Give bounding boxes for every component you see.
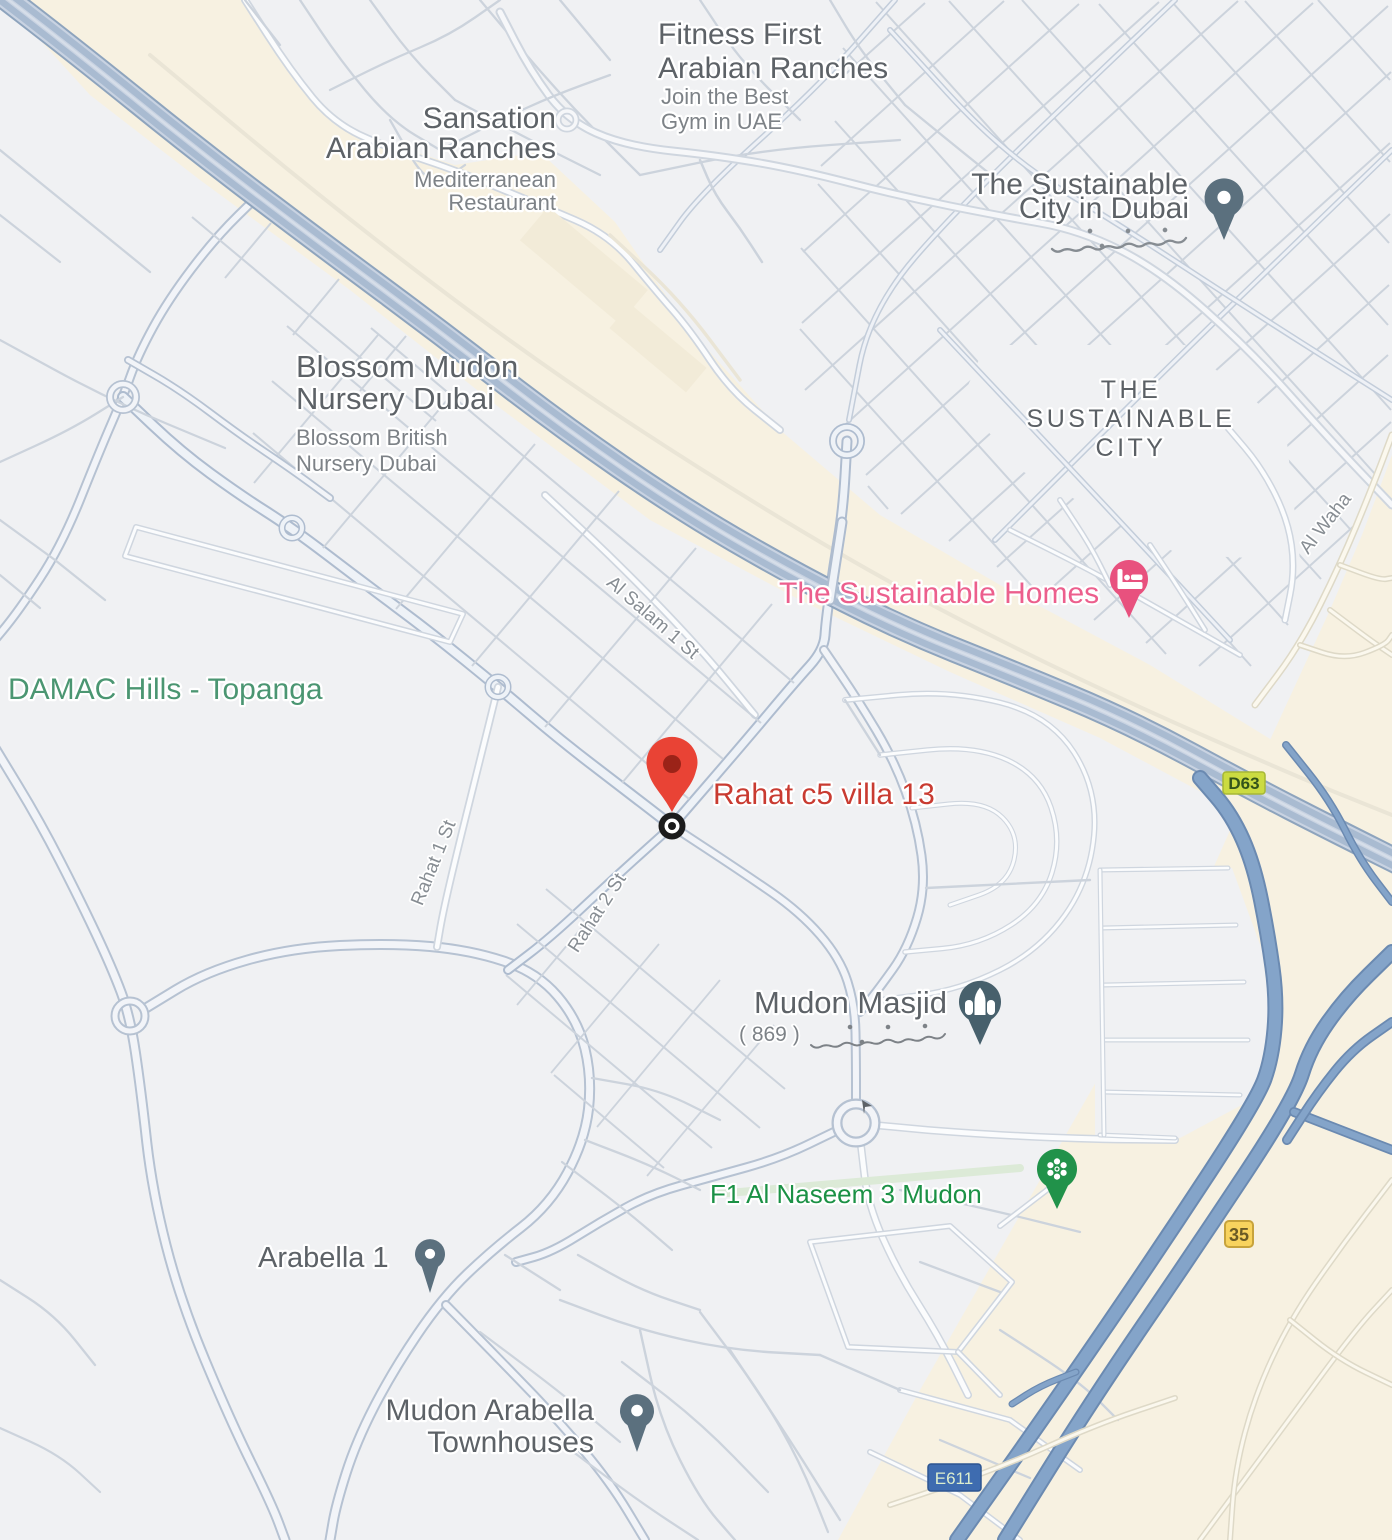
svg-text:Sansation: Sansation <box>423 102 556 135</box>
svg-text:Fitness First: Fitness First <box>658 18 822 51</box>
svg-text:( 869 ): ( 869 ) <box>739 1023 800 1046</box>
svg-text:D63: D63 <box>1228 774 1259 793</box>
svg-text:Mediterranean: Mediterranean <box>414 167 556 192</box>
svg-text:F1 Al Naseem 3 Mudon: F1 Al Naseem 3 Mudon <box>710 1179 982 1209</box>
svg-text:Join the Best: Join the Best <box>661 84 788 109</box>
svg-text:Blossom Mudon: Blossom Mudon <box>296 349 518 384</box>
svg-text:Restaurant: Restaurant <box>448 190 556 215</box>
svg-text:Blossom British: Blossom British <box>296 425 448 450</box>
svg-text:CITY: CITY <box>1096 434 1167 462</box>
svg-text:Nursery Dubai: Nursery Dubai <box>296 451 437 476</box>
svg-text:Arabian Ranches: Arabian Ranches <box>326 132 556 165</box>
svg-text:City in Dubai: City in Dubai <box>1019 192 1189 225</box>
svg-text:Nursery Dubai: Nursery Dubai <box>296 381 494 416</box>
svg-text:35: 35 <box>1229 1225 1249 1245</box>
svg-text:The Sustainable Homes: The Sustainable Homes <box>779 577 1099 610</box>
svg-text:Mudon Arabella: Mudon Arabella <box>386 1394 595 1427</box>
svg-text:Gym in UAE: Gym in UAE <box>661 109 782 134</box>
svg-text:Rahat c5 villa 13: Rahat c5 villa 13 <box>713 778 935 811</box>
svg-text:SUSTAINABLE: SUSTAINABLE <box>1027 405 1236 433</box>
svg-text:THE: THE <box>1101 376 1162 404</box>
svg-text:Arabella 1: Arabella 1 <box>258 1242 389 1274</box>
svg-text:Townhouses: Townhouses <box>427 1426 594 1459</box>
svg-text:DAMAC Hills - Topanga: DAMAC Hills - Topanga <box>8 673 323 706</box>
svg-text:E611: E611 <box>935 1469 973 1488</box>
svg-text:Arabian Ranches: Arabian Ranches <box>658 52 888 85</box>
svg-text:Mudon Masjid: Mudon Masjid <box>754 985 947 1020</box>
